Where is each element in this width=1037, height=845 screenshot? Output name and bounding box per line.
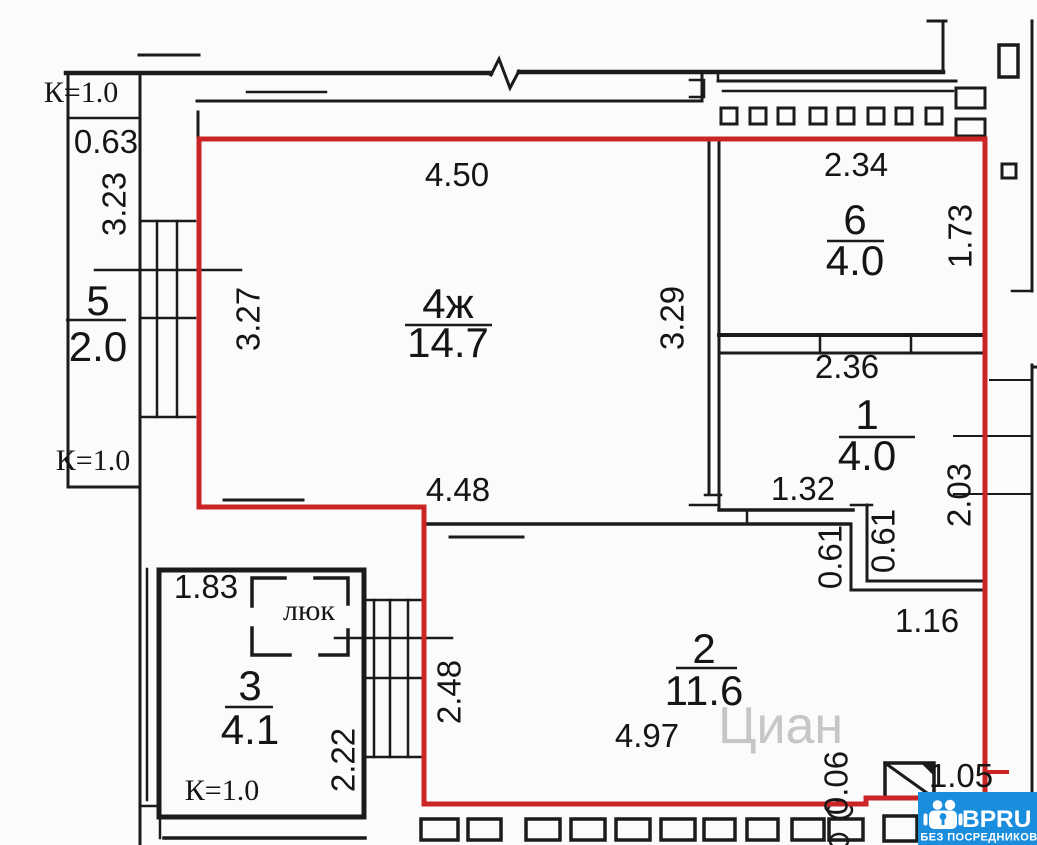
svg-text:BPRU: BPRU [962, 806, 1031, 833]
svg-text:3.23: 3.23 [96, 172, 133, 236]
svg-text:11.6: 11.6 [665, 667, 744, 714]
svg-text:2.22: 2.22 [325, 728, 362, 792]
svg-text:4.97: 4.97 [615, 717, 679, 754]
svg-text:1.05: 1.05 [929, 757, 993, 794]
svg-text:1.32: 1.32 [771, 470, 835, 507]
svg-text:4.1: 4.1 [221, 706, 279, 753]
svg-text:4.0: 4.0 [838, 432, 896, 479]
svg-text:6: 6 [843, 196, 866, 243]
svg-text:3: 3 [238, 662, 261, 709]
svg-text:К=1.0: К=1.0 [185, 774, 259, 807]
svg-text:0.61: 0.61 [812, 525, 849, 589]
svg-text:3.29: 3.29 [654, 286, 691, 350]
svg-text:4.50: 4.50 [425, 156, 489, 193]
svg-text:5: 5 [86, 277, 109, 324]
svg-text:0.61: 0.61 [865, 509, 902, 573]
svg-text:К=1.0: К=1.0 [44, 76, 118, 109]
svg-text:1.16: 1.16 [895, 602, 959, 639]
svg-text:0.63: 0.63 [74, 123, 138, 160]
svg-text:2.03: 2.03 [941, 463, 978, 527]
svg-text:0.06: 0.06 [818, 751, 855, 815]
svg-text:14.7: 14.7 [407, 319, 489, 366]
svg-text:4.48: 4.48 [426, 471, 490, 508]
svg-text:2.36: 2.36 [815, 348, 879, 385]
svg-text:1: 1 [855, 391, 878, 438]
svg-text:1.83: 1.83 [174, 568, 238, 605]
svg-text:2: 2 [692, 625, 715, 672]
svg-text:люк: люк [283, 594, 335, 627]
svg-text:2.34: 2.34 [824, 146, 888, 183]
svg-text:3.27: 3.27 [230, 287, 267, 351]
svg-text:1.73: 1.73 [942, 204, 979, 268]
svg-text:2.0: 2.0 [69, 323, 127, 370]
svg-text:БЕЗ ПОСРЕДНИКОВ: БЕЗ ПОСРЕДНИКОВ [920, 832, 1037, 844]
svg-text:К=1.0: К=1.0 [56, 444, 130, 477]
svg-text:4.0: 4.0 [826, 237, 884, 284]
svg-text:2.48: 2.48 [431, 660, 468, 724]
